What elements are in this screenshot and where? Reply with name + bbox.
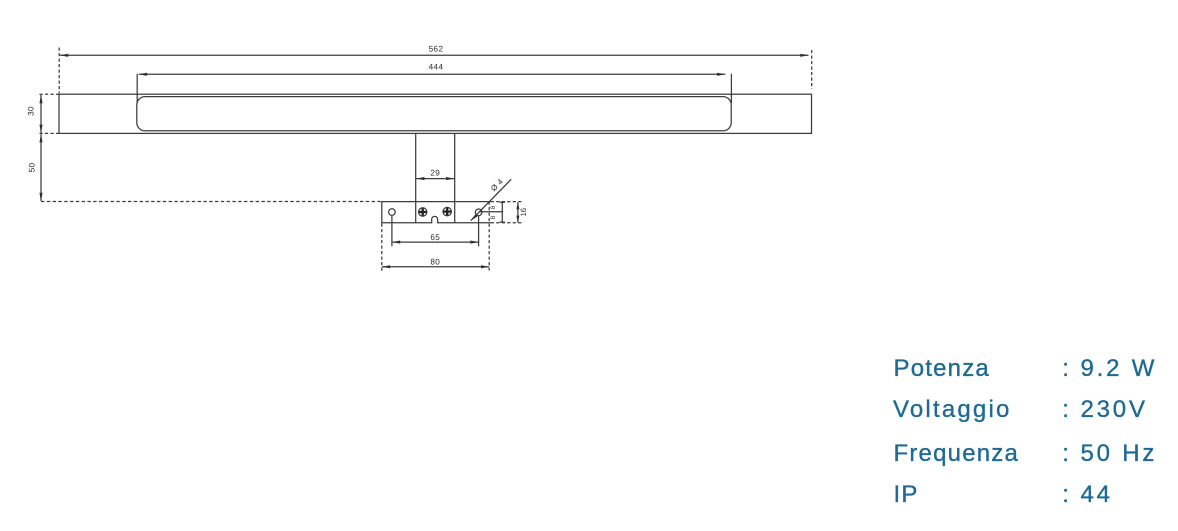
svg-text:444: 444 (429, 62, 444, 71)
svg-text:65: 65 (430, 233, 440, 242)
svg-text:80: 80 (430, 257, 440, 266)
svg-text:50: 50 (27, 163, 36, 173)
svg-text:8: 8 (490, 215, 497, 219)
svg-text:8: 8 (490, 205, 497, 209)
svg-text:16: 16 (519, 208, 528, 217)
svg-text:30: 30 (27, 106, 36, 116)
svg-text:562: 562 (429, 44, 444, 53)
svg-text:Ø 4: Ø 4 (489, 177, 505, 193)
svg-text:29: 29 (430, 168, 440, 177)
